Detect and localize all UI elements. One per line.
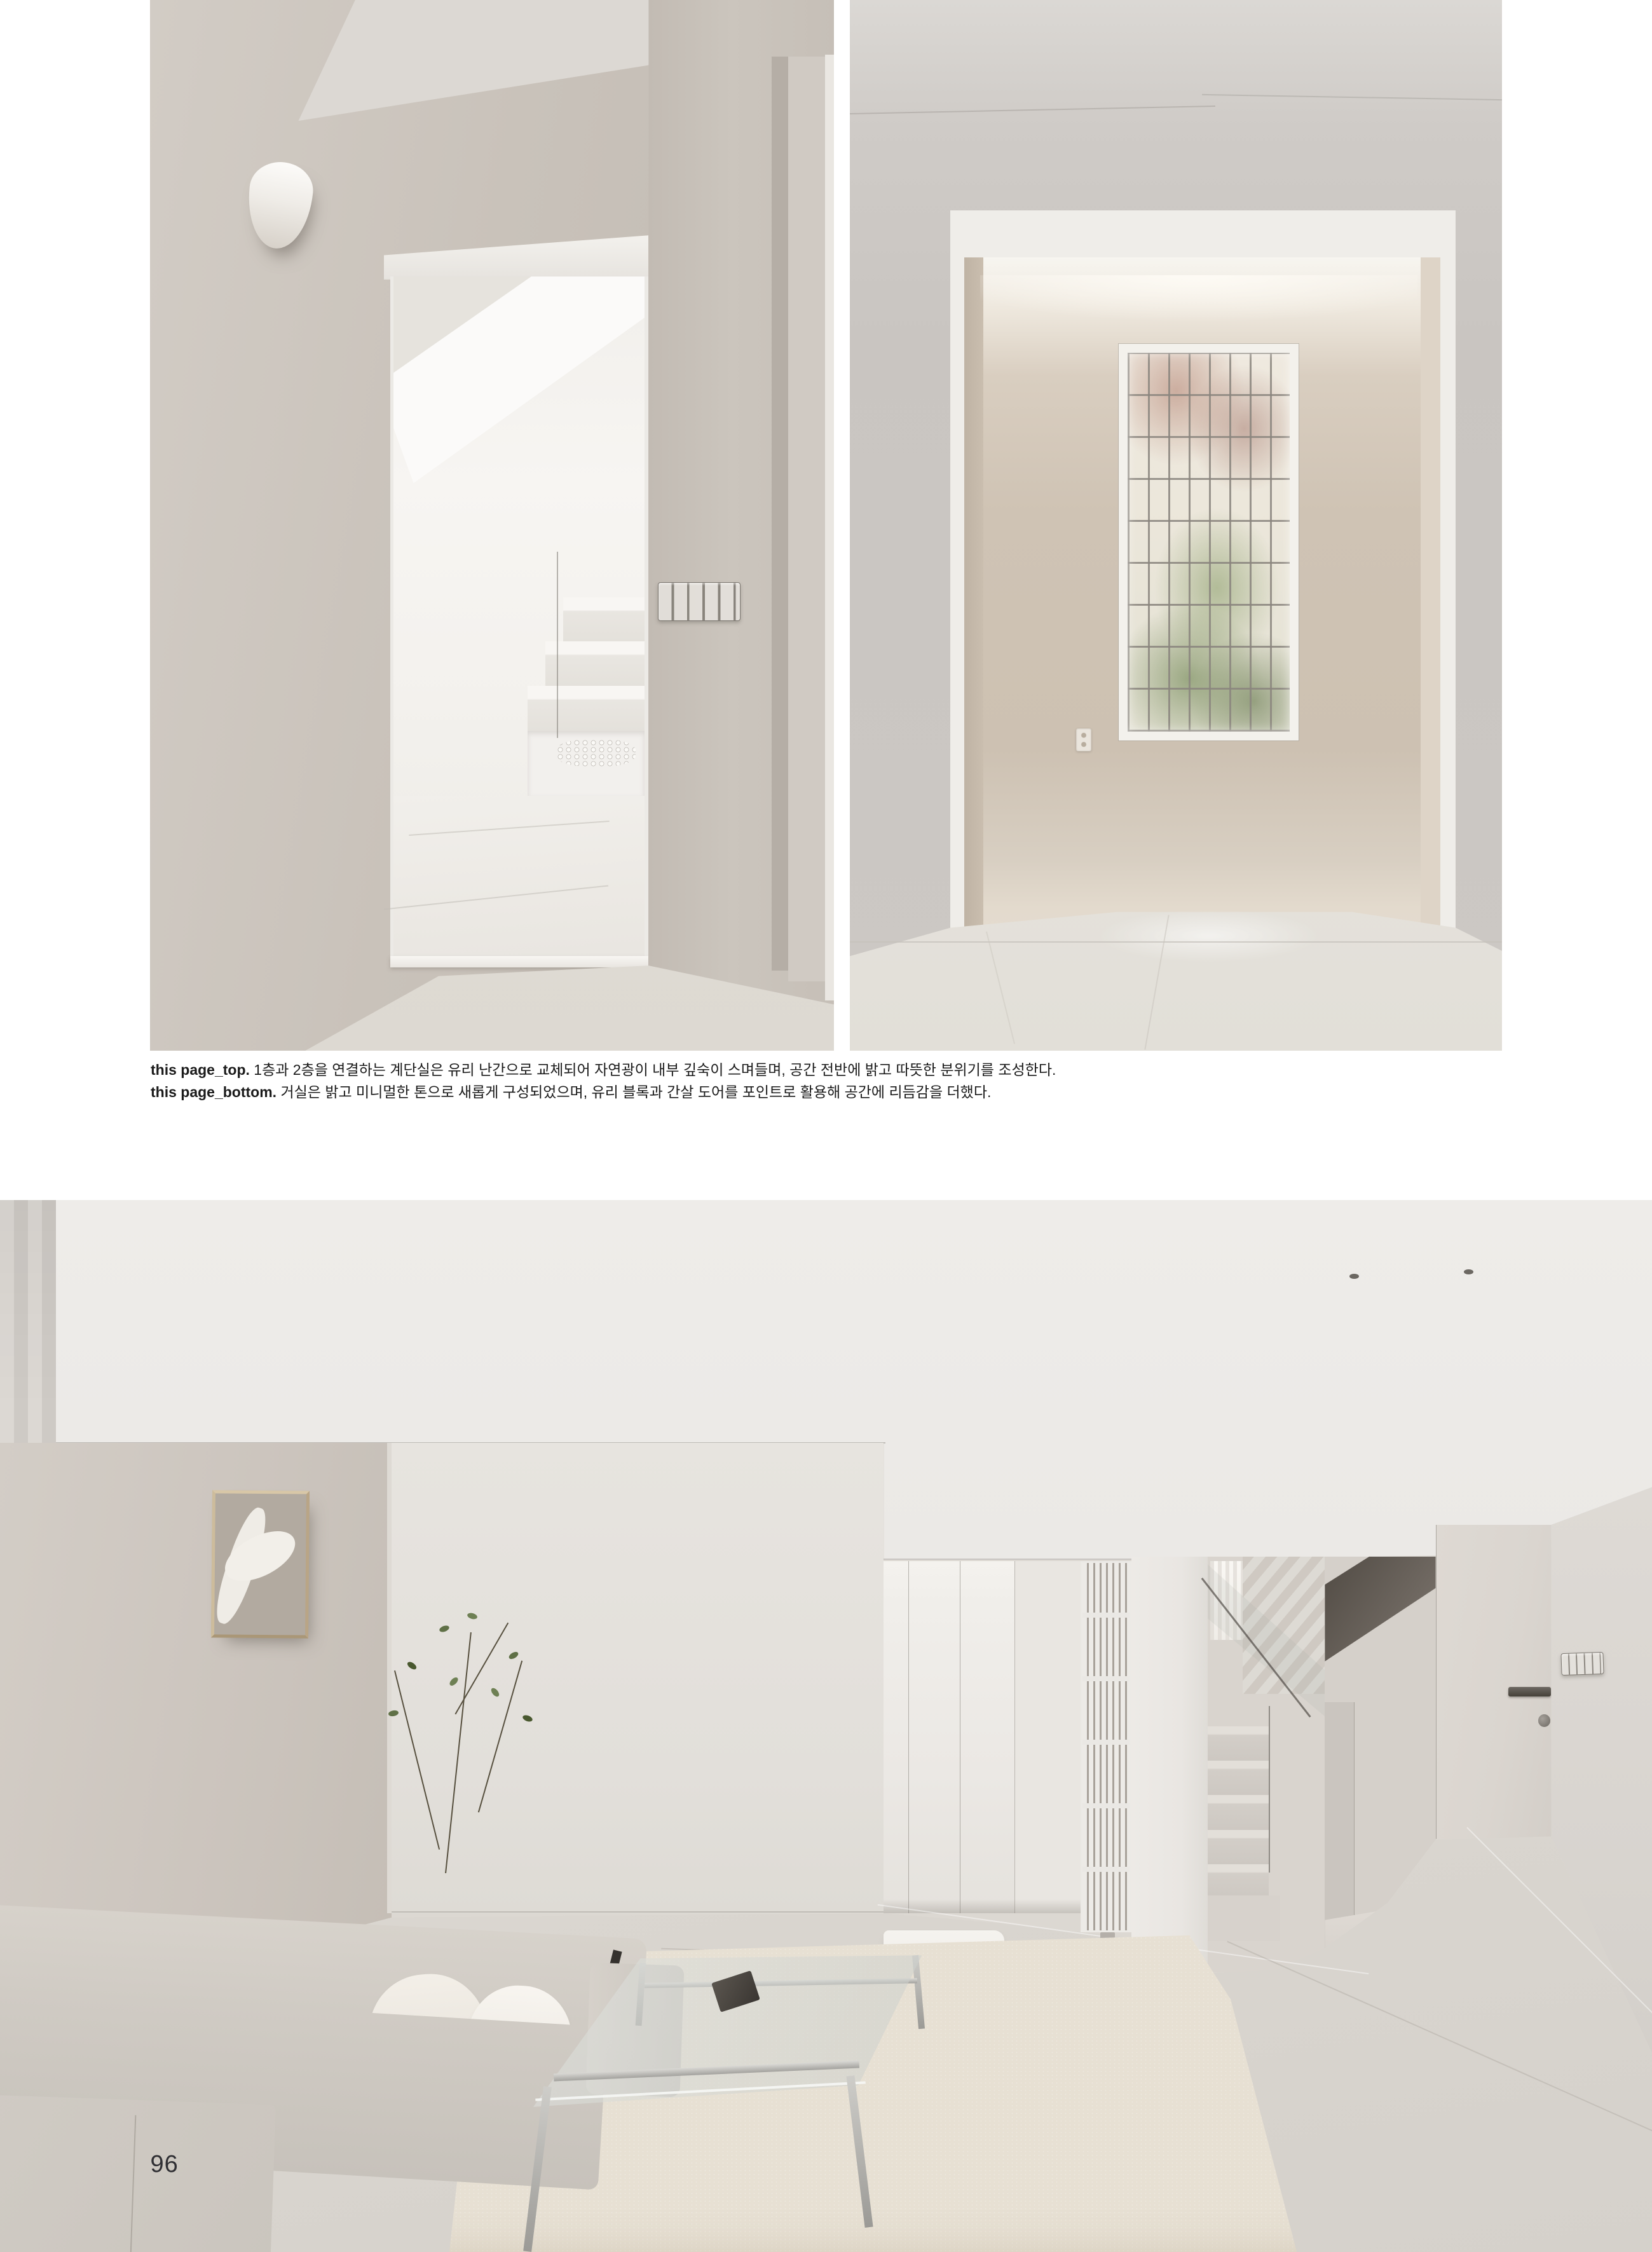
doorway-chamfer bbox=[384, 235, 648, 279]
plant-branches bbox=[347, 1610, 578, 1873]
cushion-seam bbox=[129, 2115, 136, 2252]
stair-step bbox=[1208, 1795, 1269, 1829]
ceiling-crease bbox=[850, 106, 1215, 114]
recessed-light-glow bbox=[980, 275, 1417, 322]
plant-leaf bbox=[439, 1625, 450, 1634]
magazine-page: this page_top. 1층과 2층을 연결하는 계단실은 유리 난간으로… bbox=[0, 0, 1652, 2252]
stair-step bbox=[528, 686, 645, 732]
photo-captions: this page_top. 1층과 2층을 연결하는 계단실은 유리 난간으로… bbox=[151, 1059, 1485, 1103]
photo-living-room: 96 bbox=[0, 1200, 1652, 2252]
stair-step bbox=[545, 641, 645, 685]
wall-sconce-light bbox=[243, 159, 316, 251]
plant-leaf bbox=[448, 1676, 460, 1688]
glass-railing-edge bbox=[557, 552, 558, 738]
light-switch bbox=[658, 582, 741, 622]
wall-outlet bbox=[1076, 728, 1091, 751]
interior-door bbox=[1436, 1525, 1553, 1838]
wall-pillar bbox=[1131, 1557, 1208, 1973]
plant-leaf bbox=[406, 1660, 418, 1671]
stair-step bbox=[1208, 1830, 1269, 1864]
caption-top-text: 1층과 2층을 연결하는 계단실은 유리 난간으로 교체되어 자연광이 내부 깊… bbox=[250, 1061, 1056, 1078]
glass-block-window bbox=[1119, 344, 1299, 741]
caption-bottom-text: 거실은 밝고 미니멀한 톤으로 새롭게 구성되었으며, 유리 블록과 간살 도어… bbox=[276, 1084, 991, 1100]
closet-door-seam bbox=[908, 1561, 909, 1913]
stair-step bbox=[1208, 1761, 1269, 1795]
door-handle bbox=[1508, 1687, 1552, 1696]
wall-base-line bbox=[392, 1911, 884, 1913]
plant-stem bbox=[455, 1622, 509, 1714]
doorway-opening bbox=[393, 276, 645, 966]
closet-door-seam bbox=[960, 1561, 960, 1913]
caption-bottom-label: this page_bottom. bbox=[151, 1084, 276, 1100]
window-reflection bbox=[1098, 910, 1320, 962]
caption-bottom: this page_bottom. 거실은 밝고 미니멀한 톤으로 새롭게 구성… bbox=[151, 1081, 1485, 1103]
sofa-chaise bbox=[0, 2094, 276, 2252]
recess-side-wall bbox=[1014, 1561, 1081, 1913]
glass-panel-edge bbox=[1269, 1706, 1270, 1872]
caption-top-label: this page_top. bbox=[151, 1061, 250, 1078]
ceiling-crease bbox=[1202, 94, 1502, 100]
stair-step bbox=[1208, 1726, 1269, 1761]
door-niche bbox=[788, 57, 825, 981]
door-niche-shadow bbox=[772, 57, 788, 971]
plant-leaf bbox=[467, 1612, 478, 1620]
plant-stem bbox=[478, 1660, 522, 1812]
left-side-wall bbox=[0, 1443, 392, 1937]
staircase-area bbox=[1208, 1557, 1325, 1972]
stair-step bbox=[1208, 1864, 1269, 1899]
floor-joint bbox=[850, 941, 1502, 943]
recessed-spotlight bbox=[1349, 1274, 1359, 1279]
under-stair-panel bbox=[1325, 1702, 1354, 1951]
light-switch bbox=[1560, 1651, 1604, 1675]
wardrobe-recess bbox=[884, 1561, 1080, 1913]
door-lock-knob bbox=[1538, 1714, 1550, 1727]
plant-stem bbox=[394, 1671, 440, 1850]
plant-leaf bbox=[490, 1686, 501, 1698]
stair-step bbox=[563, 597, 645, 641]
slatted-partition-door bbox=[1081, 1561, 1132, 1932]
caption-top: this page_top. 1층과 2층을 연결하는 계단실은 유리 난간으로… bbox=[151, 1059, 1485, 1081]
white-pebbles bbox=[556, 739, 636, 766]
page-number: 96 bbox=[151, 2151, 179, 2178]
plant-leaf bbox=[522, 1714, 533, 1723]
threshold-step bbox=[390, 956, 649, 967]
artwork-frame bbox=[211, 1490, 310, 1638]
plant-stem bbox=[446, 1632, 472, 1873]
recess-base-shadow bbox=[884, 1899, 1080, 1913]
door-edge-highlight bbox=[825, 55, 834, 1000]
photo-glass-block-room bbox=[850, 0, 1502, 1051]
plant-leaf bbox=[508, 1650, 519, 1660]
plant-leaf bbox=[388, 1709, 399, 1717]
photo-stairwell-hallway bbox=[150, 0, 834, 1051]
stair-bottom-block bbox=[1208, 1895, 1280, 1941]
